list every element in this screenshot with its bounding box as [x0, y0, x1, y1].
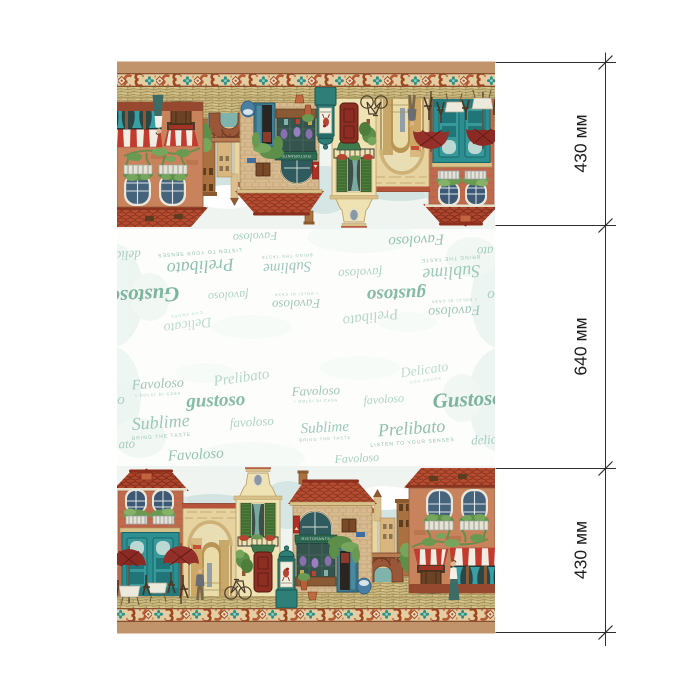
- svg-text:430 мм: 430 мм: [571, 114, 591, 172]
- svg-text:640 мм: 640 мм: [571, 317, 591, 375]
- svg-text:430 мм: 430 мм: [571, 521, 591, 579]
